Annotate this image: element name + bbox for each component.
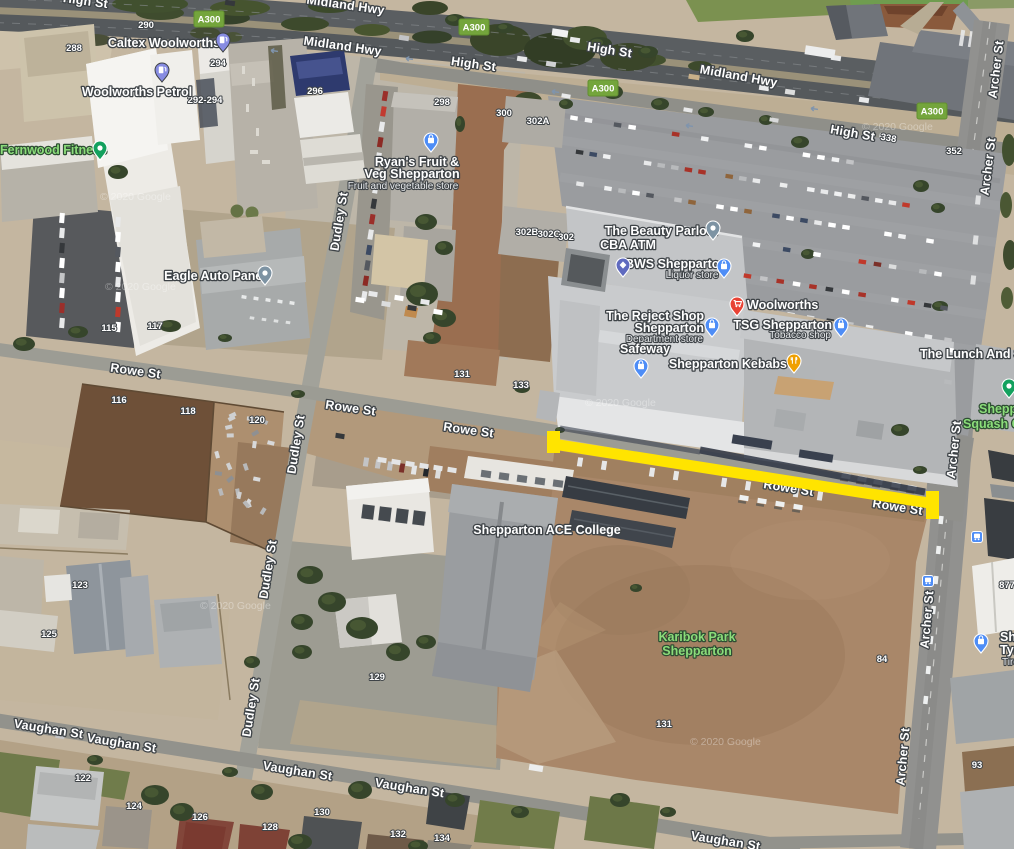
svg-text:Liquor store: Liquor store xyxy=(666,270,719,281)
svg-text:352: 352 xyxy=(946,146,962,157)
svg-text:Shepparton: Shepparton xyxy=(635,321,704,335)
svg-text:131: 131 xyxy=(454,369,471,380)
svg-text:© 2020 Google: © 2020 Google xyxy=(862,121,933,133)
svg-text:Tire s: Tire s xyxy=(1002,657,1014,668)
svg-text:877: 877 xyxy=(999,580,1014,591)
svg-text:A300: A300 xyxy=(198,15,221,26)
svg-text:The Lunch And Sn: The Lunch And Sn xyxy=(920,347,1014,361)
svg-text:134: 134 xyxy=(434,833,451,844)
svg-text:Fernwood Fitness: Fernwood Fitness xyxy=(0,143,107,157)
svg-text:Shepparton Kebabs: Shepparton Kebabs xyxy=(669,357,787,371)
svg-text:118: 118 xyxy=(180,406,195,417)
svg-text:Shepp: Shepp xyxy=(1000,630,1014,644)
svg-text:290: 290 xyxy=(138,20,154,31)
svg-text:294: 294 xyxy=(210,58,227,69)
svg-text:Tobacco shop: Tobacco shop xyxy=(769,330,831,341)
svg-text:© 2020 Google: © 2020 Google xyxy=(690,736,761,748)
svg-text:292-294: 292-294 xyxy=(188,95,224,106)
svg-text:BWS Shepparton: BWS Shepparton xyxy=(625,257,727,271)
svg-text:Veg Shepparton: Veg Shepparton xyxy=(364,167,459,181)
svg-text:122: 122 xyxy=(75,773,91,784)
svg-text:117: 117 xyxy=(147,321,162,332)
svg-text:296: 296 xyxy=(307,86,323,97)
svg-text:Woolworths Petrol: Woolworths Petrol xyxy=(82,85,192,99)
svg-text:302A: 302A xyxy=(527,116,550,127)
svg-text:© 2020 Google: © 2020 Google xyxy=(200,600,271,612)
svg-text:Fruit and vegetable store: Fruit and vegetable store xyxy=(348,181,459,192)
svg-text:Woolworths: Woolworths xyxy=(747,298,818,312)
svg-text:302: 302 xyxy=(558,232,574,243)
svg-text:A300: A300 xyxy=(592,84,615,95)
svg-text:Tyre: Tyre xyxy=(1000,643,1014,657)
svg-text:124: 124 xyxy=(126,801,143,812)
svg-text:288: 288 xyxy=(66,43,82,54)
svg-text:126: 126 xyxy=(192,812,208,823)
svg-text:115: 115 xyxy=(101,323,117,334)
svg-text:The Beauty Parlour: The Beauty Parlour xyxy=(605,224,720,238)
svg-text:Caltex Woolworths: Caltex Woolworths xyxy=(108,36,220,50)
svg-text:125: 125 xyxy=(41,629,58,640)
svg-text:Safeway: Safeway xyxy=(620,342,670,356)
svg-text:Shepparton: Shepparton xyxy=(662,644,731,658)
svg-text:CBA ATM: CBA ATM xyxy=(600,238,656,252)
svg-text:132: 132 xyxy=(390,829,406,840)
svg-text:300: 300 xyxy=(496,108,512,119)
svg-text:128: 128 xyxy=(262,822,278,833)
svg-text:A300: A300 xyxy=(463,23,486,34)
svg-text:93: 93 xyxy=(972,760,983,771)
svg-text:133: 133 xyxy=(513,380,529,391)
svg-text:84: 84 xyxy=(877,654,888,665)
svg-text:Shepparton ACE College: Shepparton ACE College xyxy=(473,523,621,537)
svg-text:302C: 302C xyxy=(538,229,561,240)
svg-text:116: 116 xyxy=(111,395,126,406)
svg-text:Eagle Auto Panel: Eagle Auto Panel xyxy=(164,269,266,283)
svg-text:Squash Cen: Squash Cen xyxy=(963,417,1014,431)
svg-text:298: 298 xyxy=(434,97,450,108)
svg-text:Sheppar: Sheppar xyxy=(979,402,1014,416)
svg-text:A300: A300 xyxy=(921,107,944,118)
svg-text:Karibok Park: Karibok Park xyxy=(658,630,735,644)
svg-text:© 2020 Google: © 2020 Google xyxy=(105,281,176,293)
svg-text:© 2020 Google: © 2020 Google xyxy=(100,191,171,203)
svg-text:123: 123 xyxy=(72,580,88,591)
svg-text:131: 131 xyxy=(656,719,673,730)
svg-text:129: 129 xyxy=(369,672,385,683)
svg-text:302B: 302B xyxy=(516,227,539,238)
svg-text:130: 130 xyxy=(314,807,330,818)
svg-text:120: 120 xyxy=(249,415,265,426)
svg-text:© 2020 Google: © 2020 Google xyxy=(585,397,656,409)
